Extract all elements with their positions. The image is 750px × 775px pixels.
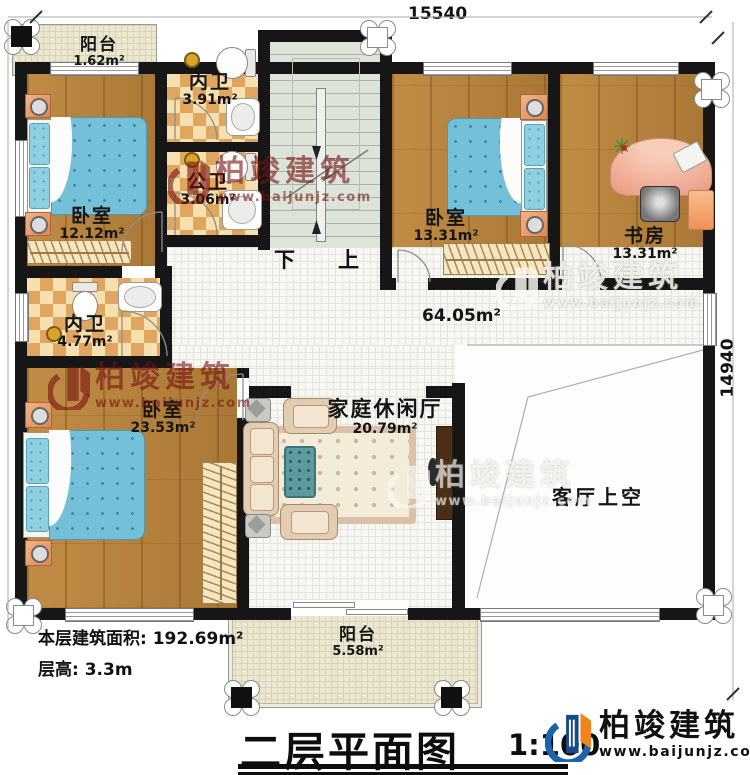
bed <box>23 430 143 538</box>
column-symbol <box>696 588 732 624</box>
stairs-down-label: 下 <box>274 244 295 274</box>
window <box>480 608 660 622</box>
room-label-balcony-bottom: 阳台 5.58m² <box>308 626 408 660</box>
column-symbol <box>694 72 730 108</box>
tv-icon <box>428 458 438 486</box>
coffee-table <box>284 446 316 498</box>
living-void-floor <box>460 345 703 608</box>
bed <box>27 117 145 213</box>
wall <box>15 266 122 278</box>
wall <box>600 278 703 290</box>
wall <box>408 608 480 620</box>
column-symbol <box>6 598 42 634</box>
column-symbol <box>360 20 396 56</box>
company-logo: 柏竣建筑 www.baijunjz.com <box>545 708 750 762</box>
room-label-family-hall: 家庭休闲厅 20.79m² <box>305 398 465 437</box>
wardrobe <box>202 462 237 604</box>
dimension-top: 15540 <box>408 4 467 24</box>
wall <box>237 368 249 378</box>
room-label-bedroom-tl: 卧室 12.12m² <box>37 206 147 243</box>
window <box>423 62 512 76</box>
armchair <box>280 504 338 540</box>
column-symbol <box>224 680 260 716</box>
company-logo-url: www.baijunjz.com <box>599 745 750 759</box>
light-fixture-icon <box>184 52 200 68</box>
stairs-up-label: 上 <box>338 244 359 274</box>
room-label-living-void: 客厅上空 <box>538 486 658 508</box>
wardrobe <box>27 240 132 264</box>
wall <box>380 278 396 290</box>
floor-stats: 本层建筑面积: 192.69m² 层高: 3.3m <box>38 624 243 685</box>
sofa <box>243 422 279 516</box>
room-label-balcony-top: 阳台 1.62m² <box>49 36 149 70</box>
wall <box>380 30 392 290</box>
nightstand <box>25 402 52 428</box>
column-symbol <box>434 680 470 716</box>
room-label-bath-public: 公卫 3.06m² <box>163 172 253 209</box>
room-label-bedroom-tm: 卧室 13.31m² <box>391 208 501 245</box>
stair-guide <box>292 58 360 210</box>
company-logo-icon <box>545 708 591 762</box>
window <box>703 293 717 346</box>
wall <box>15 356 172 368</box>
company-logo-name: 柏竣建筑 <box>599 711 750 742</box>
hall-floor-neck <box>172 345 455 368</box>
stair-rail <box>316 88 326 242</box>
window <box>593 62 679 76</box>
nightstand <box>520 211 548 237</box>
room-label-study: 书房 13.31m² <box>590 226 700 263</box>
washbasin-icon <box>118 282 162 312</box>
floor-height-text: 层高: 3.3m <box>38 655 243 686</box>
tv-cabinet <box>436 426 453 520</box>
light-fixture-icon <box>184 152 200 168</box>
dimension-tick <box>727 688 739 700</box>
room-label-bath-inner-top: 内卫 3.91m² <box>165 72 255 109</box>
window <box>65 608 194 622</box>
title-underline <box>238 764 568 769</box>
hall-area-label: 64.05m² <box>422 306 532 326</box>
nightstand <box>520 94 548 120</box>
nightstand <box>25 540 52 566</box>
wall <box>249 386 291 398</box>
floor-plan-canvas: ✳ <box>0 0 750 775</box>
column-symbol <box>4 19 40 55</box>
side-table <box>688 190 714 230</box>
end-table <box>245 398 271 422</box>
dimension-tick <box>700 11 712 23</box>
plant-icon: ✳ <box>613 138 631 158</box>
floor-area-text: 本层建筑面积: 192.69m² <box>38 624 243 655</box>
nightstand <box>25 94 51 118</box>
bed <box>447 118 545 214</box>
wardrobe <box>443 243 550 275</box>
dimension-tick <box>712 32 724 44</box>
room-label-bath-inner-left: 内卫 4.77m² <box>40 314 130 351</box>
wall <box>160 266 172 368</box>
wall <box>155 235 270 247</box>
wall <box>703 344 715 620</box>
room-label-bedroom-bl: 卧室 23.53m² <box>108 400 218 437</box>
sliding-door <box>291 600 408 616</box>
dimension-right: 14940 <box>718 328 738 408</box>
window <box>15 293 29 342</box>
wall <box>428 278 562 290</box>
end-table <box>245 514 271 538</box>
wall <box>192 608 291 620</box>
computer-monitor-icon <box>640 186 680 222</box>
